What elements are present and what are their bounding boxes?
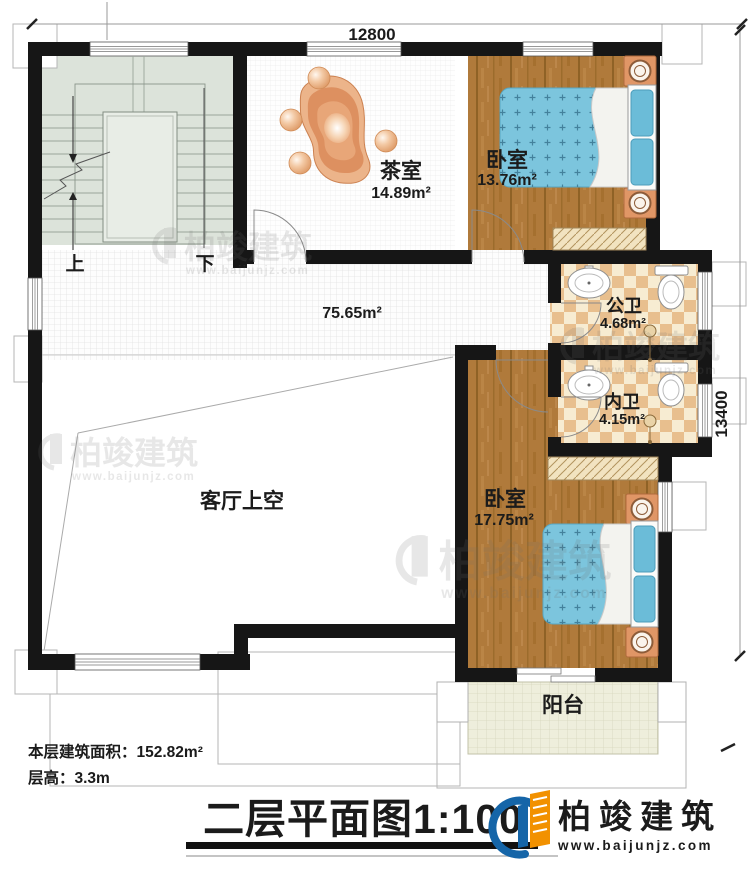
window-top-stair (90, 42, 188, 56)
brand-logo: 柏竣建筑 www.baijunjz.com (492, 790, 722, 855)
faucet (585, 366, 593, 370)
dimension-right: 13400 (712, 390, 731, 437)
label-bedroom-bottom: 卧室 (484, 487, 526, 511)
pillow (634, 526, 655, 572)
area-corridor: 75.65m² (322, 305, 382, 322)
toilet (658, 275, 684, 309)
stair-landing (103, 112, 177, 242)
title-underline-thick (186, 842, 538, 849)
svg-text:www.baijunjz.com: www.baijunjz.com (71, 471, 195, 483)
svg-text:www.baijunjz.com: www.baijunjz.com (440, 585, 607, 602)
page-title: 二层平面图1:100 (203, 796, 523, 842)
pillow (631, 139, 653, 185)
title-underline-thin (186, 855, 558, 857)
window-left (28, 278, 42, 330)
label-stairs-up: 上 (65, 253, 84, 275)
pillow (631, 90, 653, 136)
window-bath-right-1 (698, 272, 712, 330)
tea-stool (375, 130, 397, 152)
area-bedroom-bottom: 17.75m² (474, 512, 534, 529)
svg-text:www.baijunjz.com: www.baijunjz.com (593, 365, 717, 377)
area-bedroom-top: 13.76m² (477, 172, 537, 189)
window-bath-right-2 (698, 384, 712, 437)
label-bedroom-top: 卧室 (486, 148, 528, 172)
sliding-door-balcony (517, 668, 595, 682)
void-sightline-1 (78, 357, 453, 433)
window-top-tea (307, 42, 401, 56)
watermark: 柏竣建筑 www.baijunjz.com (41, 434, 198, 483)
window-bedroom-bottom-right (658, 482, 672, 532)
tea-stool (289, 152, 311, 174)
toilet (658, 374, 684, 406)
pillow (634, 576, 655, 622)
label-private-bath: 内卫 (604, 391, 640, 412)
lower-floor-outline (218, 652, 460, 764)
label-public-bath: 公卫 (606, 296, 642, 316)
window-top-bedroom (523, 42, 593, 56)
label-balcony: 阳台 (542, 693, 584, 717)
label-living-void: 客厅上空 (200, 489, 284, 513)
toilet-tank (655, 266, 688, 275)
svg-text:柏竣建筑: 柏竣建筑 (439, 539, 612, 587)
area-private-bath: 4.15m² (599, 412, 645, 428)
svg-text:柏竣建筑: 柏竣建筑 (70, 435, 198, 471)
area-public-bath: 4.68m² (600, 316, 646, 332)
floorplan-drawing: 柏竣建筑 www.baijunjz.com 柏竣建筑 www.baijunjz.… (0, 0, 750, 872)
closet-bottom (548, 457, 658, 480)
blanket (590, 88, 632, 187)
tea-stool (308, 67, 330, 89)
brand-url: www.baijunjz.com (557, 838, 713, 853)
balcony-side-left (437, 682, 468, 722)
logo-building-blue (518, 803, 528, 848)
label-stairs-down: 下 (195, 254, 214, 275)
tea-stool (280, 109, 302, 131)
floor-drain (644, 415, 656, 427)
ground-outline (50, 694, 460, 786)
label-tea-room: 茶室 (380, 159, 422, 183)
closet-top (553, 228, 646, 250)
stat-floor-height: 层高：3.3m (28, 768, 110, 787)
window-bottom-left (75, 654, 200, 670)
stat-floor-area: 本层建筑面积：152.82m² (28, 742, 203, 761)
balcony-slab (468, 682, 658, 754)
brand-name: 柏竣建筑 (558, 798, 722, 835)
area-tea-room: 14.89m² (371, 185, 431, 202)
floorplan-page: 柏竣建筑 www.baijunjz.com 柏竣建筑 www.baijunjz.… (0, 0, 750, 872)
titleblock: 本层建筑面积：152.82m² 层高：3.3m 二层平面图1:100 (28, 742, 558, 857)
balcony-side-right (658, 682, 686, 722)
svg-text:柏竣建筑: 柏竣建筑 (592, 329, 720, 365)
watermark: 柏竣建筑 www.baijunjz.com (399, 536, 611, 602)
dimension-top: 12800 (348, 25, 395, 44)
